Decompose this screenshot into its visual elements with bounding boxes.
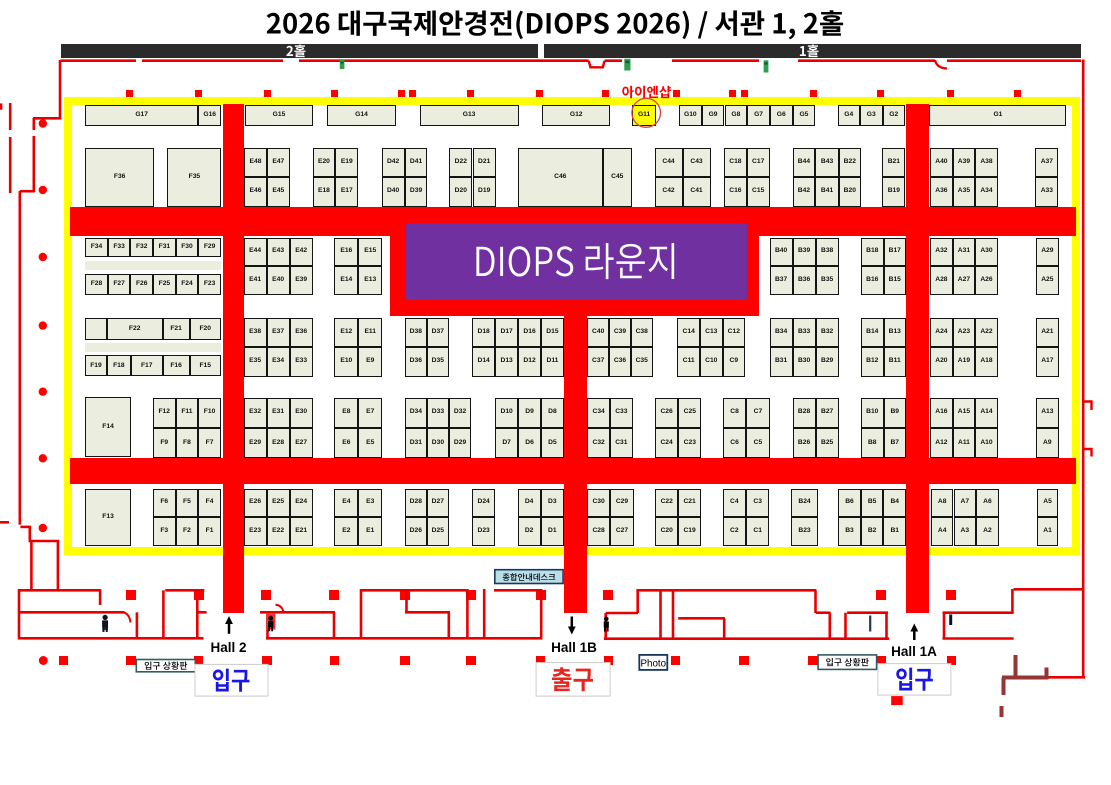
svg-text:Hall 1A: Hall 1A [891, 644, 937, 659]
svg-text:Hall 2: Hall 2 [210, 640, 246, 655]
svg-text:Hall 1B: Hall 1B [551, 640, 597, 655]
svg-text:Photo: Photo [640, 658, 666, 669]
